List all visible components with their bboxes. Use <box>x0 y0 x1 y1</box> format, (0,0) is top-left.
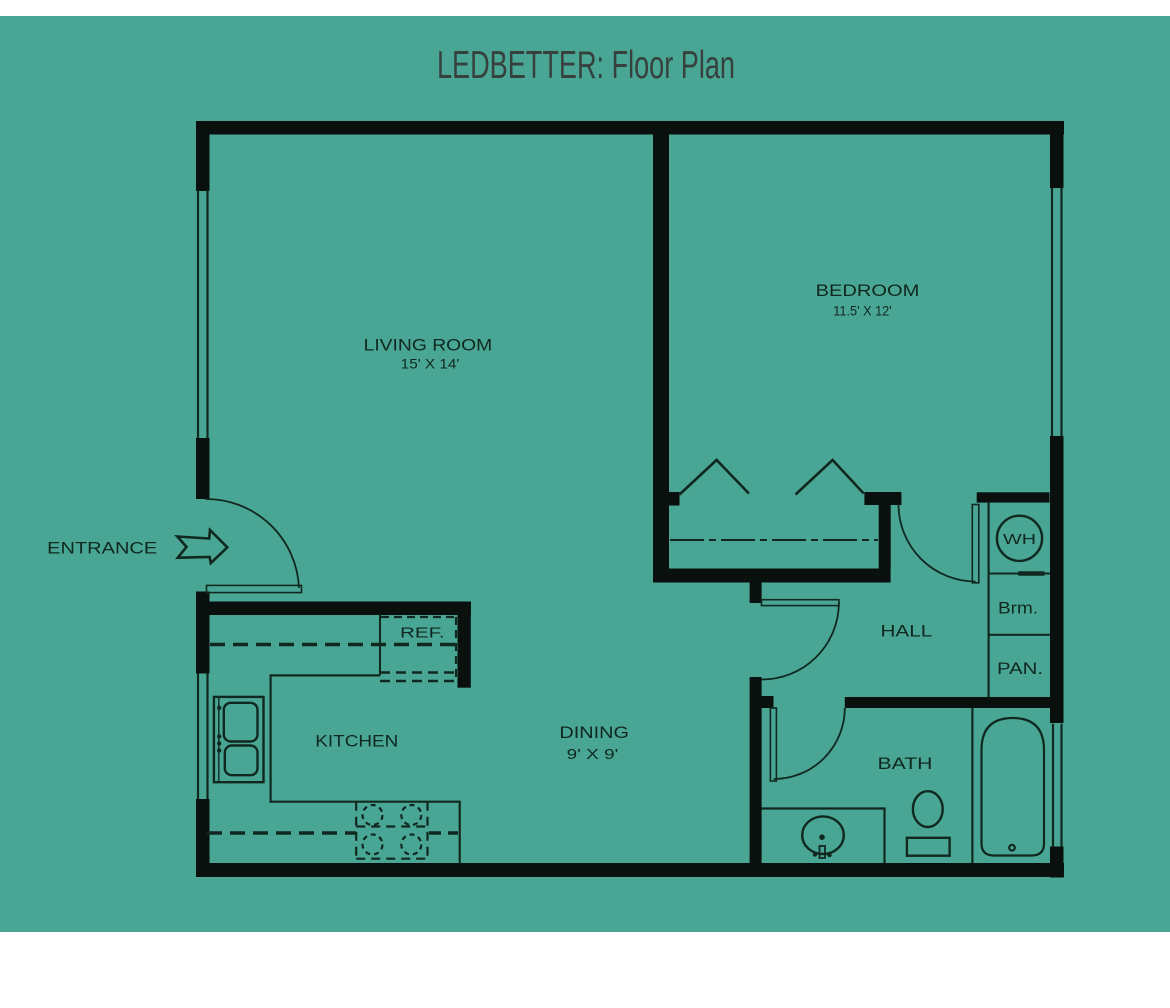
svg-text:Brm.: Brm. <box>998 598 1038 617</box>
svg-text:BEDROOM: BEDROOM <box>816 282 920 300</box>
svg-text:9' X 9': 9' X 9' <box>567 746 619 763</box>
svg-text:KITCHEN: KITCHEN <box>315 733 398 751</box>
svg-text:LIVING ROOM: LIVING ROOM <box>364 337 493 355</box>
svg-text:11.5' X 12': 11.5' X 12' <box>833 304 891 319</box>
svg-text:ENTRANCE: ENTRANCE <box>47 540 157 558</box>
svg-text:WH: WH <box>1003 531 1036 548</box>
svg-text:LEDBETTER: Floor Plan: LEDBETTER: Floor Plan <box>437 44 735 87</box>
svg-text:DINING: DINING <box>559 724 629 742</box>
svg-text:15' X 14': 15' X 14' <box>401 357 460 372</box>
svg-text:PAN.: PAN. <box>997 659 1043 678</box>
svg-text:HALL: HALL <box>881 623 933 641</box>
svg-text:BATH: BATH <box>878 755 933 773</box>
svg-text:REF.: REF. <box>400 625 445 642</box>
